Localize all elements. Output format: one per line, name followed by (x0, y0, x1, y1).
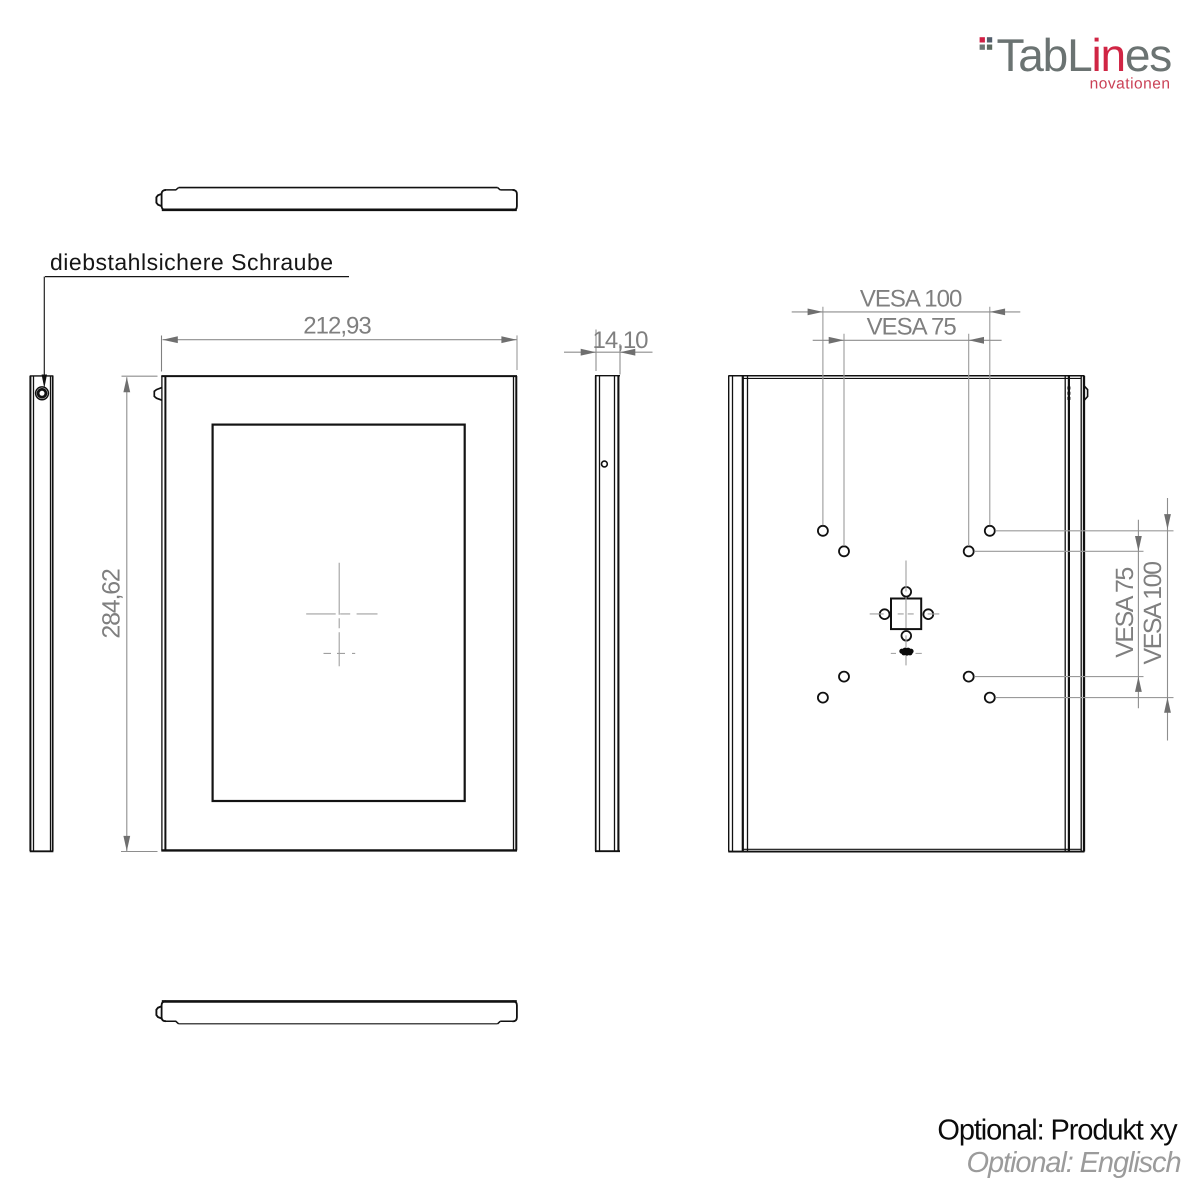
svg-text:VESA 100: VESA 100 (1139, 562, 1167, 665)
svg-text:VESA 75: VESA 75 (1111, 568, 1139, 658)
svg-text:Optional: Englisch: Optional: Englisch (967, 1147, 1181, 1179)
svg-text:284,62: 284,62 (98, 569, 126, 639)
svg-text:novationen: novationen (1090, 76, 1171, 93)
svg-text:212,93: 212,93 (303, 313, 371, 340)
svg-text:TabLines: TabLines (997, 29, 1172, 81)
svg-text:VESA 75: VESA 75 (867, 314, 957, 341)
svg-text:14,10: 14,10 (592, 327, 648, 354)
svg-text:diebstahlsichere Schraube: diebstahlsichere Schraube (50, 249, 334, 275)
svg-text:VESA 100: VESA 100 (860, 285, 962, 312)
svg-text:Optional: Produkt xy: Optional: Produkt xy (937, 1115, 1178, 1147)
